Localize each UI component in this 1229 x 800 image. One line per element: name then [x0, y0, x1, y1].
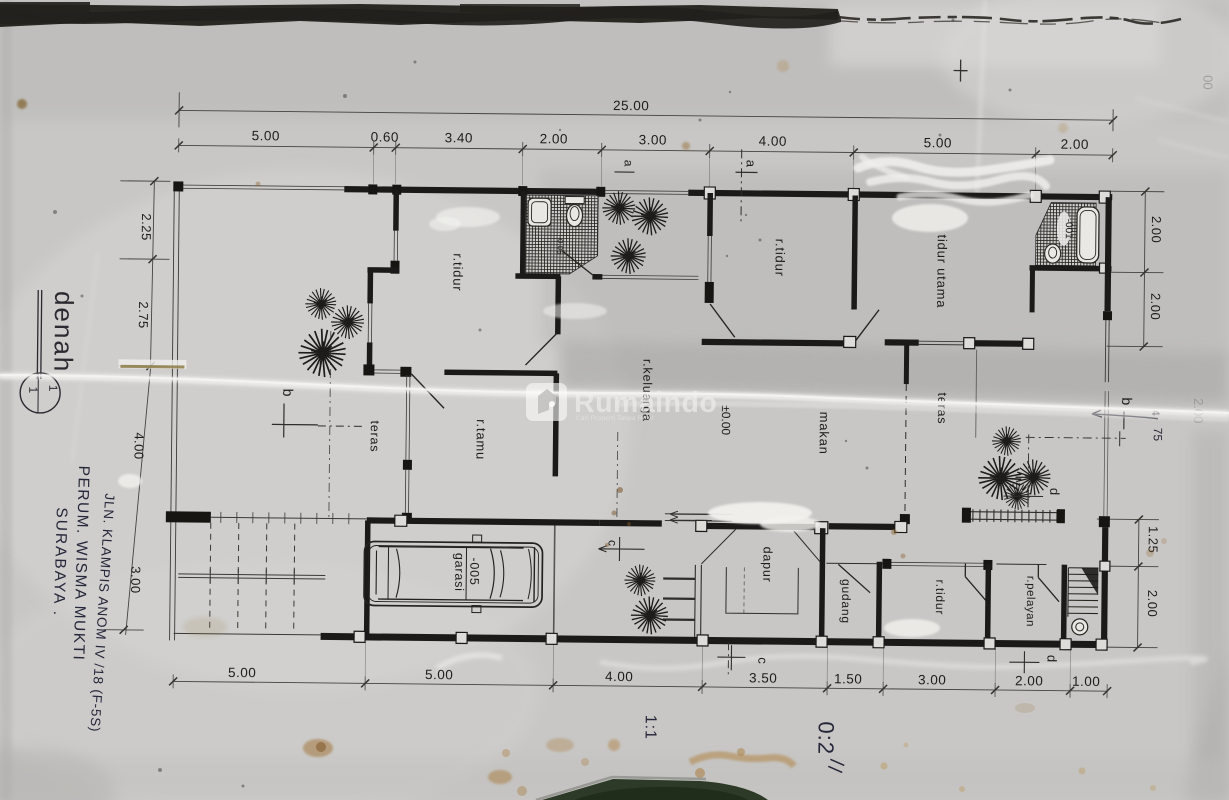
svg-text:4.00: 4.00 — [605, 669, 633, 684]
svg-text:teras: teras — [368, 421, 382, 453]
svg-text:-005: -005 — [467, 557, 481, 585]
svg-text:00: 00 — [1200, 75, 1215, 90]
svg-text:1.25: 1.25 — [1146, 526, 1161, 553]
svg-text:5.00: 5.00 — [252, 128, 280, 143]
svg-text:2.00: 2.00 — [540, 131, 568, 146]
svg-text:a: a — [744, 160, 759, 168]
svg-text:0:2: 0:2 — [813, 721, 838, 755]
svg-text:Cari Properti Tanpa Ribet: Cari Properti Tanpa Ribet — [576, 415, 654, 422]
svg-text:d: d — [1047, 488, 1062, 495]
svg-text:25.00: 25.00 — [613, 98, 649, 113]
svg-text:5.00: 5.00 — [924, 135, 952, 150]
svg-text:2.00: 2.00 — [1148, 293, 1163, 320]
svg-text:garasi: garasi — [452, 553, 466, 592]
svg-text:±0.00: ±0.00 — [719, 405, 733, 435]
svg-text:5.00: 5.00 — [228, 665, 256, 680]
svg-text:1: 1 — [46, 385, 60, 392]
svg-text:gudang: gudang — [839, 579, 853, 624]
svg-text:makan: makan — [817, 412, 832, 455]
svg-text:2.00: 2.00 — [1145, 590, 1160, 617]
svg-text:dapur: dapur — [760, 547, 774, 583]
svg-text:3.00: 3.00 — [128, 566, 143, 593]
svg-text:SURABAYA .: SURABAYA . — [50, 507, 70, 617]
svg-text:-001: -001 — [1063, 219, 1074, 240]
svg-text:1.00: 1.00 — [1072, 674, 1100, 689]
svg-text:tidur utama: tidur utama — [934, 234, 950, 308]
svg-text:r.pelayan: r.pelayan — [1024, 576, 1037, 627]
svg-text:1.50: 1.50 — [834, 671, 862, 686]
svg-text:2.75: 2.75 — [136, 301, 151, 328]
svg-text:3.00: 3.00 — [918, 672, 946, 687]
svg-text:2.00: 2.00 — [1015, 673, 1043, 688]
svg-text:2.00: 2.00 — [1061, 137, 1089, 152]
svg-text:b: b — [280, 389, 296, 397]
svg-text:d: d — [1044, 655, 1059, 662]
svg-text:r.tamu: r.tamu — [473, 419, 488, 460]
svg-text:5.00: 5.00 — [425, 667, 453, 682]
svg-text:3.40: 3.40 — [445, 130, 473, 145]
svg-text:4.00: 4.00 — [759, 133, 787, 148]
svg-text:4.00: 4.00 — [131, 432, 146, 459]
svg-text:1:1: 1:1 — [642, 715, 659, 740]
svg-text:a: a — [622, 160, 636, 167]
svg-text:3.50: 3.50 — [749, 670, 777, 685]
svg-text:r.tidur: r.tidur — [450, 253, 465, 291]
svg-text:r.tidur: r.tidur — [772, 239, 787, 277]
svg-text:1: 1 — [26, 386, 40, 393]
svg-text:c: c — [755, 657, 770, 664]
svg-text:r.tidur: r.tidur — [933, 580, 947, 616]
svg-text:2.25: 2.25 — [139, 213, 154, 240]
svg-text:0.60: 0.60 — [371, 129, 399, 144]
svg-text:75: 75 — [1151, 428, 1165, 442]
svg-text:2.00: 2.00 — [1149, 216, 1164, 243]
svg-text:3.00: 3.00 — [639, 132, 667, 147]
svg-text:b: b — [1119, 397, 1135, 405]
svg-text:denah: denah — [48, 291, 79, 374]
